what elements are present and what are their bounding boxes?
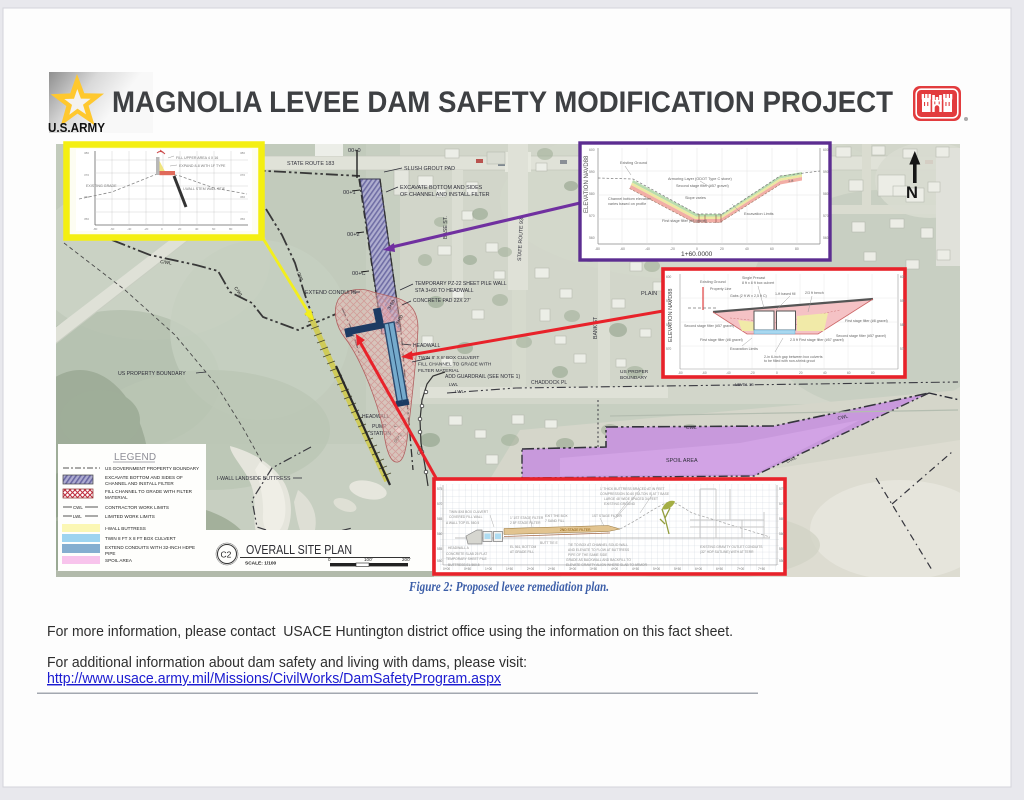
svg-text:LWL: LWL xyxy=(455,389,465,394)
svg-text:TEMPORARY SHEET PILE: TEMPORARY SHEET PILE xyxy=(446,557,487,561)
svg-text:Figure 2: Proposed levee remed: Figure 2: Proposed levee remediation pla… xyxy=(408,579,609,594)
svg-text:-20: -20 xyxy=(144,227,149,231)
svg-text:2 8F STAGE FILTER: 2 8F STAGE FILTER xyxy=(510,521,541,525)
svg-text:360: 360 xyxy=(84,195,89,199)
svg-text:600: 600 xyxy=(823,148,829,152)
svg-text:590: 590 xyxy=(823,170,829,174)
svg-text:Slope varies: Slope varies xyxy=(685,196,706,200)
svg-text:ELEVATION NAVD88: ELEVATION NAVD88 xyxy=(668,289,674,342)
svg-text:LEGEND: LEGEND xyxy=(114,452,156,463)
svg-text:40: 40 xyxy=(823,371,827,375)
svg-text:US PROPER: US PROPER xyxy=(620,369,649,375)
svg-text:SPOIL AREA: SPOIL AREA xyxy=(105,558,133,563)
svg-text:BUTT TIE E: BUTT TIE E xyxy=(540,541,558,545)
svg-text:Excavation Limits: Excavation Limits xyxy=(744,212,774,216)
svg-text:EL 561, BOTTOM: EL 561, BOTTOM xyxy=(510,545,536,549)
svg-text:350: 350 xyxy=(84,217,89,221)
svg-text:FILL CHANNEL TO GRADE WITH: FILL CHANNEL TO GRADE WITH FILTER xyxy=(105,489,193,494)
svg-text:580: 580 xyxy=(900,323,906,327)
svg-text:Second stage filter (#57 grave: Second stage filter (#57 gravel) xyxy=(676,184,729,188)
svg-text:600: 600 xyxy=(900,275,906,279)
svg-text:First stage filter (#8 gravel): First stage filter (#8 gravel) xyxy=(662,219,708,223)
svg-text:CONCRETE SLAB 25 FLAT: CONCRETE SLAB 25 FLAT xyxy=(446,552,487,556)
svg-text:1' 1ST STAGE FILTER: 1' 1ST STAGE FILTER xyxy=(510,516,544,520)
svg-text:N: N xyxy=(906,184,918,202)
svg-text:590: 590 xyxy=(900,299,906,303)
svg-text:I-WALL LANDSIDE BUTTRESS: I-WALL LANDSIDE BUTTRESS xyxy=(217,476,291,482)
svg-text:CONCRETE PAD 22X 27': CONCRETE PAD 22X 27' xyxy=(413,298,471,304)
svg-text:C2: C2 xyxy=(221,550,232,560)
svg-text:4+50: 4+50 xyxy=(632,567,639,571)
svg-text:EXISTING GRADE: EXISTING GRADE xyxy=(86,184,117,188)
svg-text:575: 575 xyxy=(437,487,443,491)
svg-text:580: 580 xyxy=(823,192,829,196)
svg-text:0+50: 0+50 xyxy=(464,567,471,571)
svg-text:TWIN 8' X 8' BOX CULVERT: TWIN 8' X 8' BOX CULVERT xyxy=(418,355,479,361)
svg-text:-40: -40 xyxy=(645,247,650,251)
svg-text:EXPAND 8-8 WITH 1F TYPE: EXPAND 8-8 WITH 1F TYPE xyxy=(179,164,226,168)
svg-text:First stage filter (#8 gravel): First stage filter (#8 gravel) xyxy=(845,319,888,323)
svg-text:CWL: CWL xyxy=(73,505,83,510)
svg-text:350: 350 xyxy=(240,217,245,221)
svg-text:60: 60 xyxy=(847,371,851,375)
svg-text:LEVEL 15: LEVEL 15 xyxy=(735,382,754,387)
svg-text:LIMITED WORK LIMITS: LIMITED WORK LIMITS xyxy=(105,514,155,519)
svg-text:EXTEND CONDUITS WITH 32-INC: EXTEND CONDUITS WITH 32-INCH HDPE xyxy=(105,545,195,550)
svg-text:1-ft based fill: 1-ft based fill xyxy=(775,292,796,296)
svg-text:AT GRADE FILL: AT GRADE FILL xyxy=(510,550,534,554)
svg-text:PIPE: PIPE xyxy=(105,551,115,556)
svg-text:570: 570 xyxy=(900,347,906,351)
svg-text:20: 20 xyxy=(799,371,803,375)
svg-text:570: 570 xyxy=(823,214,829,218)
svg-text:For more information, please c: For more information, please contact USA… xyxy=(47,624,733,640)
svg-text:Existing Ground: Existing Ground xyxy=(700,280,726,284)
svg-text:40: 40 xyxy=(195,227,199,231)
svg-text:7 SAND FILL: 7 SAND FILL xyxy=(545,519,565,523)
svg-text:2ND STAGE FILTER: 2ND STAGE FILTER xyxy=(560,528,591,532)
svg-text:370: 370 xyxy=(240,173,245,177)
svg-text:Armoring Layer (ODOT Type C st: Armoring Layer (ODOT Type C stone) xyxy=(668,177,733,181)
svg-text:370: 370 xyxy=(84,173,89,177)
svg-text:60: 60 xyxy=(212,227,216,231)
svg-text:580: 580 xyxy=(666,323,672,327)
svg-text:1+50: 1+50 xyxy=(506,567,513,571)
svg-text:0: 0 xyxy=(776,371,778,375)
svg-text:-20: -20 xyxy=(670,247,675,251)
svg-text:555: 555 xyxy=(779,547,785,551)
svg-text:7+50: 7+50 xyxy=(758,567,765,571)
svg-text:5+00: 5+00 xyxy=(653,567,660,571)
svg-text:HEADWALL: HEADWALL xyxy=(413,343,441,349)
svg-text:CWL: CWL xyxy=(686,425,697,431)
svg-text:-40: -40 xyxy=(127,227,132,231)
svg-text:US PROPERTY BOUNDARY: US PROPERTY BOUNDARY xyxy=(118,371,186,377)
svg-text:COMPRESSION 30-60 FULTON IS AT: COMPRESSION 30-60 FULTON IS AT 7 BASE xyxy=(600,492,670,496)
svg-text:SPOIL AREA: SPOIL AREA xyxy=(666,458,698,464)
svg-text:560: 560 xyxy=(823,236,829,240)
svg-text:OVERALL SITE PLAN: OVERALL SITE PLAN xyxy=(246,543,352,557)
svg-text:4+00: 4+00 xyxy=(611,567,618,571)
svg-text:200': 200' xyxy=(402,557,411,562)
svg-text:-60: -60 xyxy=(110,227,115,231)
svg-text:I-WALL STEM WALL STIF: I-WALL STEM WALL STIF xyxy=(183,187,226,191)
svg-text:40: 40 xyxy=(745,247,749,251)
svg-text:2+00: 2+00 xyxy=(527,567,534,571)
svg-text:565: 565 xyxy=(437,517,443,521)
svg-text:TWIN 8 FT X 8 FT BOX CULVERT: TWIN 8 FT X 8 FT BOX CULVERT xyxy=(105,536,176,541)
svg-text:-80: -80 xyxy=(678,371,683,375)
svg-text:to be filled with non-shrink g: to be filled with non-shrink grout xyxy=(764,359,815,363)
svg-text:0: 0 xyxy=(328,557,331,562)
svg-text:ADD GUARDRAIL (SEE NOTE 1): ADD GUARDRAIL (SEE NOTE 1) xyxy=(445,374,520,380)
svg-text:00+0: 00+0 xyxy=(348,148,361,154)
svg-text:CHADDOCK PL: CHADDOCK PL xyxy=(531,380,567,386)
svg-text:-60: -60 xyxy=(620,247,625,251)
svg-text:LWL: LWL xyxy=(449,382,459,387)
svg-text:600: 600 xyxy=(589,148,595,152)
svg-text:7+00: 7+00 xyxy=(737,567,744,571)
svg-text:380: 380 xyxy=(240,151,245,155)
svg-text:HEADWALL A: HEADWALL A xyxy=(448,546,470,550)
svg-text:80: 80 xyxy=(229,227,233,231)
svg-text:550: 550 xyxy=(437,559,443,563)
svg-text:2/3 ft bench: 2/3 ft bench xyxy=(805,291,824,295)
svg-text:1-ft: 1-ft xyxy=(788,179,794,183)
svg-text:570: 570 xyxy=(666,347,672,351)
svg-text:1+60.0000: 1+60.0000 xyxy=(681,251,713,258)
svg-text:U.S.ARMY: U.S.ARMY xyxy=(48,120,105,135)
svg-text:AND ELEVATE TO FLOW AT BUTTRES: AND ELEVATE TO FLOW AT BUTTRESS xyxy=(568,548,630,552)
svg-text:EXCAVATE BOTTOM AND SIDES: EXCAVATE BOTTOM AND SIDES xyxy=(400,185,483,191)
svg-text:TIE TO BOX AT CHANNEL SOLID WA: TIE TO BOX AT CHANNEL SOLID WALL xyxy=(568,543,628,547)
svg-text:3+50: 3+50 xyxy=(590,567,597,571)
svg-text:A WALL TOP EL 560.5: A WALL TOP EL 560.5 xyxy=(446,521,479,525)
svg-text:560: 560 xyxy=(779,532,785,536)
svg-text:LWL: LWL xyxy=(73,514,82,519)
svg-text:COVERED FILL WALL: COVERED FILL WALL xyxy=(449,515,483,519)
svg-text:For additional information abo: For additional information about dam saf… xyxy=(47,655,527,671)
svg-text:6+00: 6+00 xyxy=(695,567,702,571)
svg-text:60: 60 xyxy=(770,247,774,251)
svg-text:US GOVERNMENT PROPERTY BOUND: US GOVERNMENT PROPERTY BOUNDARY xyxy=(105,466,199,471)
svg-text:-40: -40 xyxy=(726,371,731,375)
svg-text:555: 555 xyxy=(437,547,443,551)
svg-text:-80: -80 xyxy=(93,227,98,231)
svg-text:580: 580 xyxy=(589,192,595,196)
svg-text:560: 560 xyxy=(437,532,443,536)
svg-text:I-WALL BUTTRESS: I-WALL BUTTRESS xyxy=(105,526,146,531)
svg-text:Channel bottom elevation: Channel bottom elevation xyxy=(608,197,651,201)
svg-text:80: 80 xyxy=(795,247,799,251)
svg-text:600: 600 xyxy=(666,275,672,279)
svg-text:575: 575 xyxy=(779,487,785,491)
svg-text:6+50: 6+50 xyxy=(716,567,723,571)
svg-text:STATE ROUTE 183: STATE ROUTE 183 xyxy=(287,161,334,167)
svg-text:570: 570 xyxy=(779,502,785,506)
svg-text:TWIN 8X8 BOX CULVERT: TWIN 8X8 BOX CULVERT xyxy=(449,510,488,514)
svg-text:SLUSH GROUT PAD: SLUSH GROUT PAD xyxy=(404,166,455,172)
svg-text:PLAIN: PLAIN xyxy=(641,291,657,297)
svg-text:Property Line: Property Line xyxy=(710,287,731,291)
svg-text:varies based on profile: varies based on profile xyxy=(608,202,646,206)
svg-text:1' THICK BUTTRESS BRACED AT IN: 1' THICK BUTTRESS BRACED AT IN FEET xyxy=(600,487,665,491)
svg-text:20: 20 xyxy=(720,247,724,251)
svg-text:565: 565 xyxy=(779,517,785,521)
svg-text:First stage filter (#8 gravel): First stage filter (#8 gravel) xyxy=(700,338,743,342)
svg-text:100': 100' xyxy=(364,557,373,562)
svg-text:Excavation Limits: Excavation Limits xyxy=(730,347,758,351)
svg-text:-80: -80 xyxy=(595,247,600,251)
svg-text:2+50: 2+50 xyxy=(548,567,555,571)
svg-text:EXIT THE BOX: EXIT THE BOX xyxy=(545,514,568,518)
svg-text:590: 590 xyxy=(666,299,672,303)
svg-text:GRADE AS BACKWALL AND BACKFILL: GRADE AS BACKWALL AND BACKFILL TO xyxy=(566,558,631,562)
svg-text:FILL UPPER AREA 4 X 16: FILL UPPER AREA 4 X 16 xyxy=(176,156,218,160)
svg-text:ELEVATION NAVD88: ELEVATION NAVD88 xyxy=(584,155,590,213)
svg-text:Single Precast: Single Precast xyxy=(742,276,765,280)
svg-text:CHANNEL AND INSTALL FILTER: CHANNEL AND INSTALL FILTER xyxy=(105,481,174,486)
svg-text:EXCAVATE BOTTOM AND SIDES: EXCAVATE BOTTOM AND SIDES OF xyxy=(105,475,183,480)
svg-text:20: 20 xyxy=(178,227,182,231)
svg-text:OF CHANNEL AND INSTALL FILTER: OF CHANNEL AND INSTALL FILTER xyxy=(400,192,490,198)
svg-text:CONTRACTOR WORK LIMITS: CONTRACTOR WORK LIMITS xyxy=(105,505,169,510)
svg-text:1+00: 1+00 xyxy=(485,567,492,571)
svg-text:MATERIAL: MATERIAL xyxy=(105,495,128,500)
svg-text:0+00: 0+00 xyxy=(443,567,450,571)
svg-text:EXISTING GROUND: EXISTING GROUND xyxy=(604,502,636,506)
svg-text:590: 590 xyxy=(589,170,595,174)
svg-text:560: 560 xyxy=(589,236,595,240)
svg-text:360: 360 xyxy=(240,195,245,199)
svg-text:EXTEND CONDUITS: EXTEND CONDUITS xyxy=(305,290,357,296)
svg-text:-60: -60 xyxy=(702,371,707,375)
svg-text:-20: -20 xyxy=(750,371,755,375)
svg-text:550: 550 xyxy=(779,559,785,563)
svg-text:570: 570 xyxy=(589,214,595,218)
svg-text:2.5 ft First stage filter (#57: 2.5 ft First stage filter (#57 gravel) xyxy=(790,338,844,342)
svg-text:FILL CHANNEL TO GRADE WITH: FILL CHANNEL TO GRADE WITH xyxy=(418,362,492,368)
svg-text:Second stage filter (#57 grave: Second stage filter (#57 gravel) xyxy=(684,324,734,328)
svg-text:3+00: 3+00 xyxy=(569,567,576,571)
svg-text:8 ft x 8 ft box culvert: 8 ft x 8 ft box culvert xyxy=(742,281,774,285)
svg-text:Existing Ground: Existing Ground xyxy=(620,161,647,165)
svg-text:TEMPORARY PZ-22 SHEET PILE WAL: TEMPORARY PZ-22 SHEET PILE WALL xyxy=(415,281,507,287)
svg-text:5+50: 5+50 xyxy=(674,567,681,571)
svg-text:PIPE OF THE SAME SIDE: PIPE OF THE SAME SIDE xyxy=(568,553,608,557)
svg-text:380: 380 xyxy=(84,151,89,155)
svg-text:SCALE: 1/100: SCALE: 1/100 xyxy=(245,561,277,567)
svg-text:570: 570 xyxy=(437,502,443,506)
svg-text:(32" HDP SUTLINE) WITH AT TERR: (32" HDP SUTLINE) WITH AT TERR xyxy=(700,550,754,554)
svg-text:EXISTING GRAVITY OUTLET CONDUI: EXISTING GRAVITY OUTLET CONDUITS xyxy=(700,545,763,549)
svg-text:STA 3+60 TO HEADWALL: STA 3+60 TO HEADWALL xyxy=(415,288,474,294)
svg-text:BANK ST: BANK ST xyxy=(593,316,599,339)
svg-text:http://www.usace.army.mil/Miss: http://www.usace.army.mil/Missions/Civil… xyxy=(47,671,502,687)
svg-text:BOUNDARY: BOUNDARY xyxy=(620,375,648,381)
svg-text:80: 80 xyxy=(871,371,875,375)
svg-text:MAGNOLIA LEVEE DAM SAFETY MODI: MAGNOLIA LEVEE DAM SAFETY MODIFICATION P… xyxy=(112,86,893,119)
